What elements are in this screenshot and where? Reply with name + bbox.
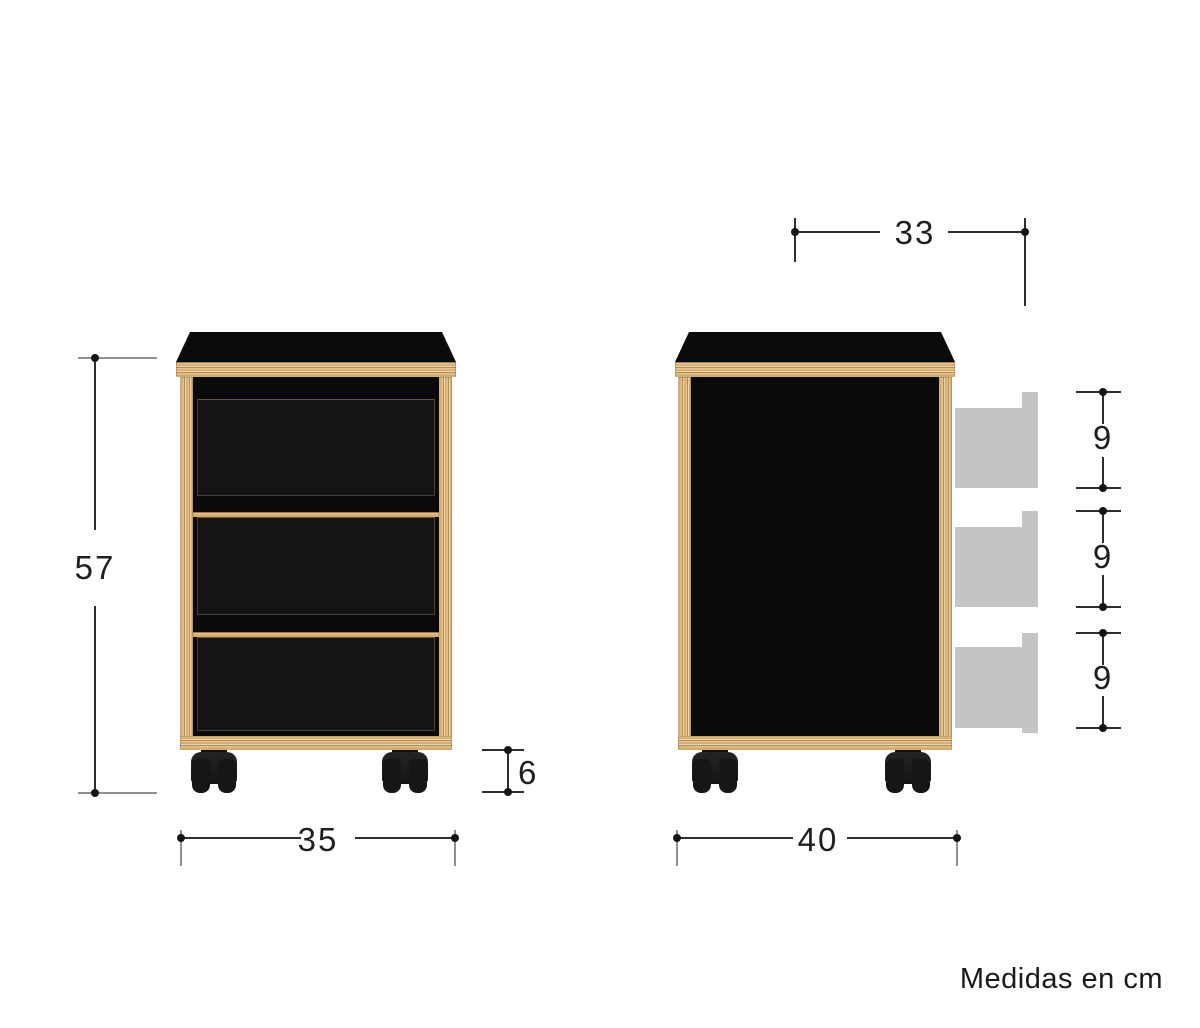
dimension-endpoint: [1099, 484, 1107, 492]
drawer-box-side: [955, 647, 1038, 728]
dimension-endpoint: [1099, 629, 1107, 637]
dimension-endpoint: [91, 789, 99, 797]
dimension-endpoint: [91, 354, 99, 362]
dimension-endpoint: [1099, 388, 1107, 396]
front-bottom-plywood-edge: [180, 736, 452, 750]
side-top-surface: [675, 332, 955, 362]
front-interior: [193, 377, 439, 736]
dimension-line: [948, 231, 1025, 233]
side-bottom-plywood-edge: [678, 736, 952, 750]
dimension-endpoint: [1099, 603, 1107, 611]
drawer-box-side: [955, 408, 1038, 488]
dimension-endpoint: [1099, 724, 1107, 732]
dimension-line: [507, 750, 509, 792]
drawer-front-1: [197, 399, 435, 496]
extension-line: [794, 218, 796, 262]
front-top-surface: [176, 332, 456, 362]
dim-label-height: 57: [60, 548, 130, 588]
drawer-box-side: [955, 527, 1038, 607]
side-body: [678, 377, 952, 750]
front-top-panel: [176, 332, 456, 377]
dimension-endpoint: [504, 788, 512, 796]
caster-wheel: [192, 759, 210, 793]
front-body: [180, 377, 452, 750]
dimension-endpoint: [177, 834, 185, 842]
dim-label-drawer-height: 9: [1079, 537, 1127, 577]
dimension-endpoint: [1021, 228, 1029, 236]
dimension-line: [355, 837, 455, 839]
side-right-caster: [885, 750, 931, 793]
dimension-line: [795, 231, 880, 233]
side-right-plywood-edge: [939, 377, 952, 750]
caster-wheel: [886, 759, 904, 793]
drawer-front-edge: [1022, 392, 1038, 408]
dim-label-drawer-height: 9: [1079, 658, 1127, 698]
dimension-endpoint: [791, 228, 799, 236]
side-drawer-silhouette-3: [955, 633, 1038, 733]
dimension-endpoint: [451, 834, 459, 842]
front-right-plywood-edge: [439, 377, 452, 750]
dimension-endpoint: [673, 834, 681, 842]
drawer-front-edge: [1022, 511, 1038, 527]
caster-wheel: [693, 759, 711, 793]
dimension-line: [94, 606, 96, 793]
dimension-endpoint: [504, 746, 512, 754]
side-top-plywood-edge: [675, 362, 955, 377]
drawer-front-edge: [1022, 633, 1038, 647]
side-drawer-silhouette-1: [955, 392, 1038, 488]
dimension-line: [94, 358, 96, 530]
side-panel: [691, 377, 939, 736]
caster-wheel: [383, 759, 401, 793]
dim-label-caster-height: 6: [518, 753, 563, 793]
drawer-front-3: [197, 637, 435, 731]
side-top-panel: [675, 332, 955, 377]
caster-wheel: [912, 759, 930, 793]
dim-label-depth: 40: [783, 820, 853, 860]
dimension-line: [677, 837, 793, 839]
dim-label-top-depth: 33: [880, 213, 950, 253]
front-left-plywood-edge: [180, 377, 193, 750]
dimension-endpoint: [1099, 507, 1107, 515]
units-caption: Medidas en cm: [960, 962, 1163, 996]
dim-label-width: 35: [283, 820, 353, 860]
dimension-line: [847, 837, 957, 839]
side-left-caster: [692, 750, 738, 793]
extension-line: [78, 357, 157, 359]
dimension-endpoint: [953, 834, 961, 842]
dimension-diagram: 57 35 6 33 40: [0, 0, 1200, 1028]
caster-wheel: [719, 759, 737, 793]
front-left-caster: [191, 750, 237, 793]
caster-wheel: [218, 759, 236, 793]
drawer-front-2: [197, 517, 435, 615]
drawer-front-lip: [1022, 728, 1038, 733]
front-right-caster: [382, 750, 428, 793]
caster-wheel: [409, 759, 427, 793]
dim-label-drawer-height: 9: [1079, 418, 1127, 458]
side-drawer-silhouette-2: [955, 511, 1038, 607]
front-top-plywood-edge: [176, 362, 456, 377]
extension-line: [78, 792, 157, 794]
extension-line: [482, 749, 524, 751]
side-left-plywood-edge: [678, 377, 691, 750]
